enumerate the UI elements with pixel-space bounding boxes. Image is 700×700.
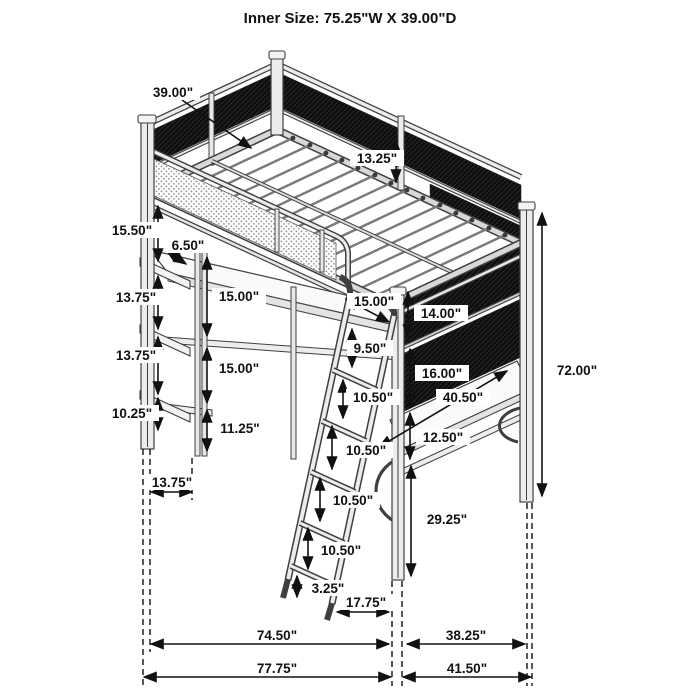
dim-label-29-25: 29.25" [427,512,467,527]
dim-label-17-75: 17.75" [346,595,386,610]
dim-label-39-00: 39.00" [153,85,193,100]
rail-baluster [275,209,279,252]
dim-label-3-25: 3.25" [312,581,345,596]
dim-label-13-75-a: 13.75" [116,290,156,305]
dim-label-10-25: 10.25" [112,406,152,421]
back-corner-post [271,55,283,135]
dim-label-13-75-w: 13.75" [152,475,192,490]
rail-baluster [320,230,324,272]
dim-label-40-50: 40.50" [443,390,483,405]
dim-label-15-00-b: 15.00" [219,361,259,376]
dim-label-10-50-d: 10.50" [321,543,361,558]
dim-label-15-00-c: 15.00" [354,294,394,309]
dim-label-9-50: 9.50" [354,341,387,356]
dim-label-10-50-b: 10.50" [346,443,386,458]
dim-label-13-75-b: 13.75" [116,348,156,363]
post-cap [138,115,156,123]
dim-label-15-00-a: 15.00" [219,289,259,304]
post-cap [269,51,285,59]
dim-label-74-50: 74.50" [257,628,297,643]
dim-label-14-00: 14.00" [421,306,461,321]
post-cap [518,202,535,210]
dim-label-10-50-a: 10.50" [353,390,393,405]
loft-bed-dimension-diagram: 39.00" 13.25" 15.50" 6.50" 13.75" 15.00"… [0,0,700,700]
dim-label-16-00: 16.00" [422,366,462,381]
shelf-inner-post [195,243,200,456]
dim-label-72-00: 72.00" [557,363,597,378]
dim-label-10-50-c: 10.50" [333,493,373,508]
dim-label-6-50: 6.50" [172,238,205,253]
desk-support-post [291,287,296,459]
dim-label-12-50: 12.50" [423,430,463,445]
dim-label-77-75: 77.75" [257,661,297,676]
dim-label-13-25: 13.25" [357,151,397,166]
dim-label-38-25: 38.25" [446,628,486,643]
dim-label-15-50: 15.50" [112,223,152,238]
diagram-title: Inner Size: 75.25"W X 39.00"D [244,10,457,27]
dim-label-11-25: 11.25" [220,421,259,436]
dim-label-41-50: 41.50" [447,661,487,676]
